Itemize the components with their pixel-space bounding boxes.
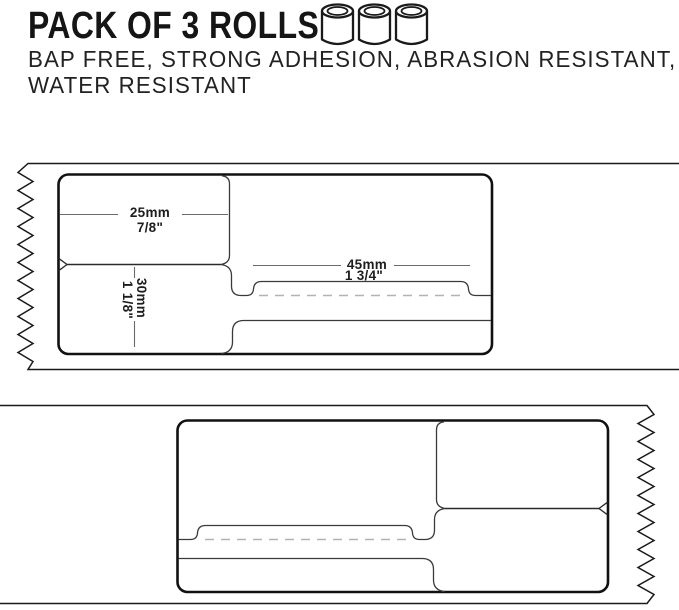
diagram-bottom — [0, 406, 654, 604]
label-dimension-diagrams: 25mm 7/8" 30mm 1 1/8" 45mm 1 3/4" — [0, 0, 679, 610]
dimension-text-25mm: 25mm — [130, 205, 170, 220]
diagram-top: 25mm 7/8" 30mm 1 1/8" 45mm 1 3/4" — [18, 164, 679, 370]
dimension-text-7-8in: 7/8" — [137, 220, 163, 235]
dimension-text-1-3-4in: 1 3/4" — [345, 268, 383, 283]
dimension-text-30mm: 30mm 1 1/8" — [120, 278, 149, 322]
label-outline — [178, 421, 609, 593]
product-infographic: PACK OF 3 ROLLS BAP FREE, STRONG ADHESIO… — [0, 0, 679, 610]
